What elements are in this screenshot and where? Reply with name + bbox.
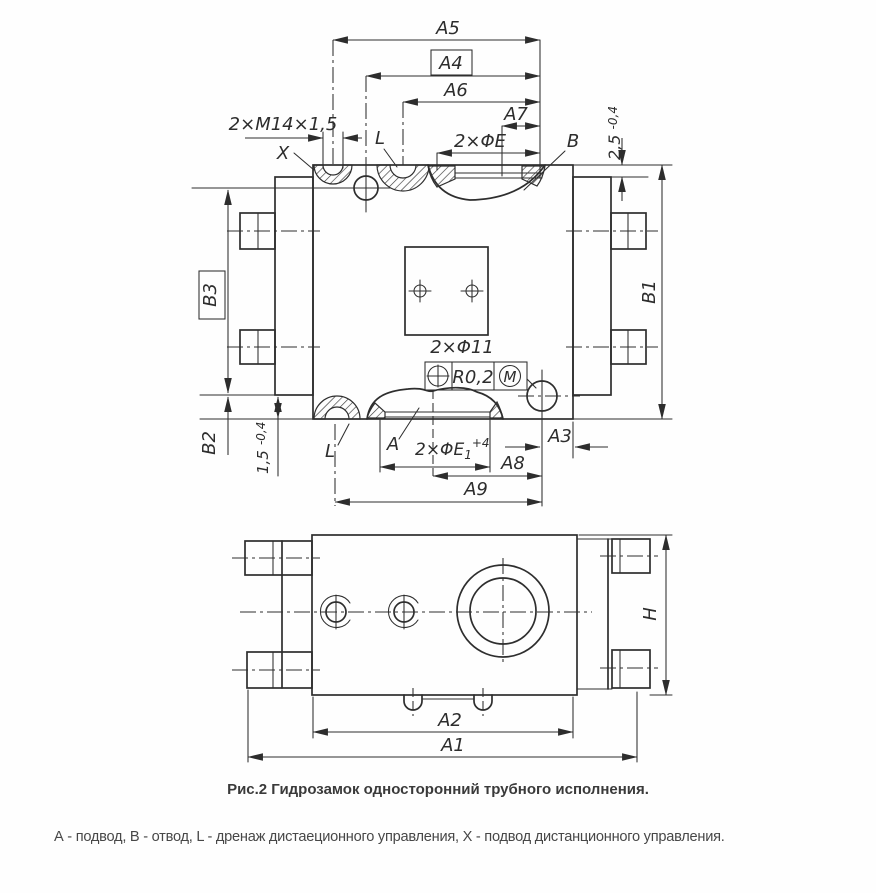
- bottom-edge-ports: [314, 388, 503, 419]
- port-label-b: B: [567, 131, 579, 152]
- port-label-l-bottom: L: [325, 441, 335, 462]
- port-l-section: [377, 165, 429, 191]
- plan-dimensions: A5 A4 A6 A7 2×ΦE 2×M14×1,5 X L B 2,5: [192, 18, 672, 506]
- port-a-recess: [367, 388, 503, 419]
- figure-caption: Рис.2 Гидрозамок односторонний трубного …: [0, 781, 876, 798]
- dim-h: H: [640, 607, 661, 621]
- dim-dia-e: 2×ΦE: [454, 131, 507, 152]
- scanned-drawing-page: R0,2 M A5 A4 A6 A7 2×ΦE: [0, 0, 876, 893]
- dim-a1: A1: [440, 735, 465, 756]
- dim-a2: A2: [437, 710, 462, 731]
- dim-a4: A4: [438, 53, 463, 74]
- front-left-flange: [232, 541, 320, 688]
- port-l-bottom-section: [314, 396, 360, 419]
- dim-b1: B1: [639, 280, 660, 304]
- plan-view: R0,2 M: [227, 165, 658, 419]
- dim-dia-e1: 2×ΦE1+4: [415, 436, 490, 462]
- dim-a8: A8: [500, 453, 525, 474]
- left-flange: [227, 177, 320, 395]
- mmc-letter: M: [504, 368, 517, 386]
- technical-drawing: R0,2 M A5 A4 A6 A7 2×ΦE: [0, 0, 876, 770]
- dim-dia-11: 2×Φ11: [430, 337, 494, 358]
- position-tolerance-frame: R0,2 M: [425, 362, 536, 390]
- dim-b3: B3: [200, 283, 221, 307]
- dim-step-top: 2,5 -0,4: [605, 106, 624, 160]
- port-label-x: X: [276, 143, 290, 164]
- dim-step-bottom: 1,5 -0,4: [253, 422, 272, 474]
- port-legend: А - подвод, В - отвод, L - дренаж дистае…: [54, 829, 854, 845]
- central-port-pad: [405, 247, 488, 335]
- port-x-section: [314, 165, 352, 184]
- valve-body-front: [312, 535, 577, 695]
- dim-b2: B2: [199, 431, 220, 455]
- dim-thread: 2×M14×1,5: [229, 114, 338, 135]
- dim-a6: A6: [443, 80, 468, 101]
- tolerance-value: R0,2: [452, 367, 493, 388]
- dim-a7: A7: [503, 104, 528, 125]
- front-view: A2 A1 H: [232, 535, 672, 762]
- port-label-l: L: [375, 128, 385, 149]
- dim-a5: A5: [435, 18, 460, 39]
- port-label-a: A: [386, 434, 399, 455]
- dim-a9: A9: [463, 479, 488, 500]
- dim-a3: A3: [547, 426, 572, 447]
- valve-body-outline: [313, 165, 573, 419]
